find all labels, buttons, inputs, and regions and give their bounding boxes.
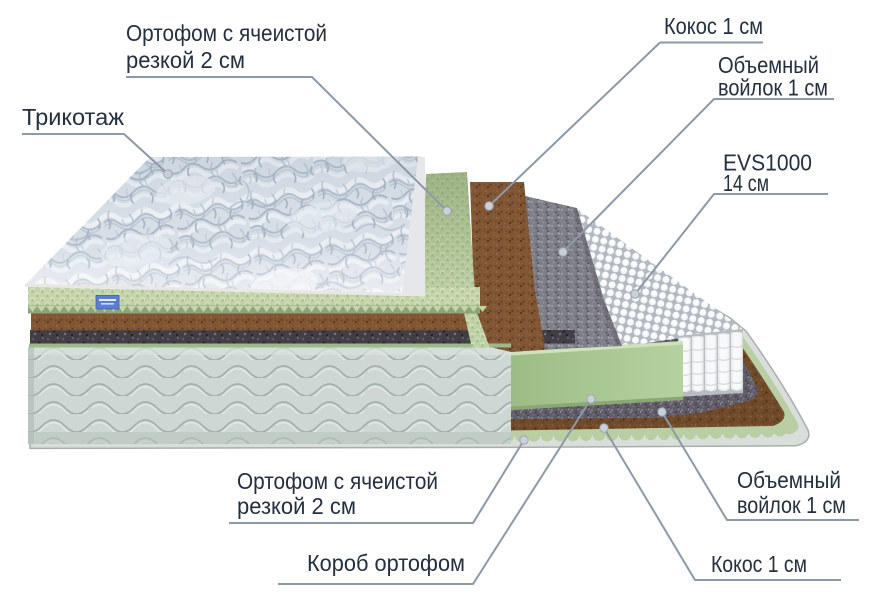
svg-text:Ортофом с ячеистой: Ортофом с ячеистой (126, 20, 327, 46)
svg-text:Короб ортофом: Короб ортофом (307, 550, 465, 576)
svg-text:Трикотаж: Трикотаж (22, 104, 124, 130)
svg-text:резкой 2 см: резкой 2 см (126, 47, 245, 73)
svg-text:войлок 1 см: войлок 1 см (718, 75, 828, 101)
svg-text:Кокос 1 см: Кокос 1 см (711, 551, 807, 577)
svg-text:резкой 2 см: резкой 2 см (237, 493, 356, 519)
svg-text:14 см: 14 см (723, 170, 769, 196)
svg-text:Кокос 1 см: Кокос 1 см (664, 13, 763, 39)
svg-text:Ортофом с ячеистой: Ортофом с ячеистой (237, 468, 438, 494)
svg-text:войлок 1 см: войлок 1 см (737, 492, 846, 518)
svg-text:Объемный: Объемный (737, 467, 841, 493)
